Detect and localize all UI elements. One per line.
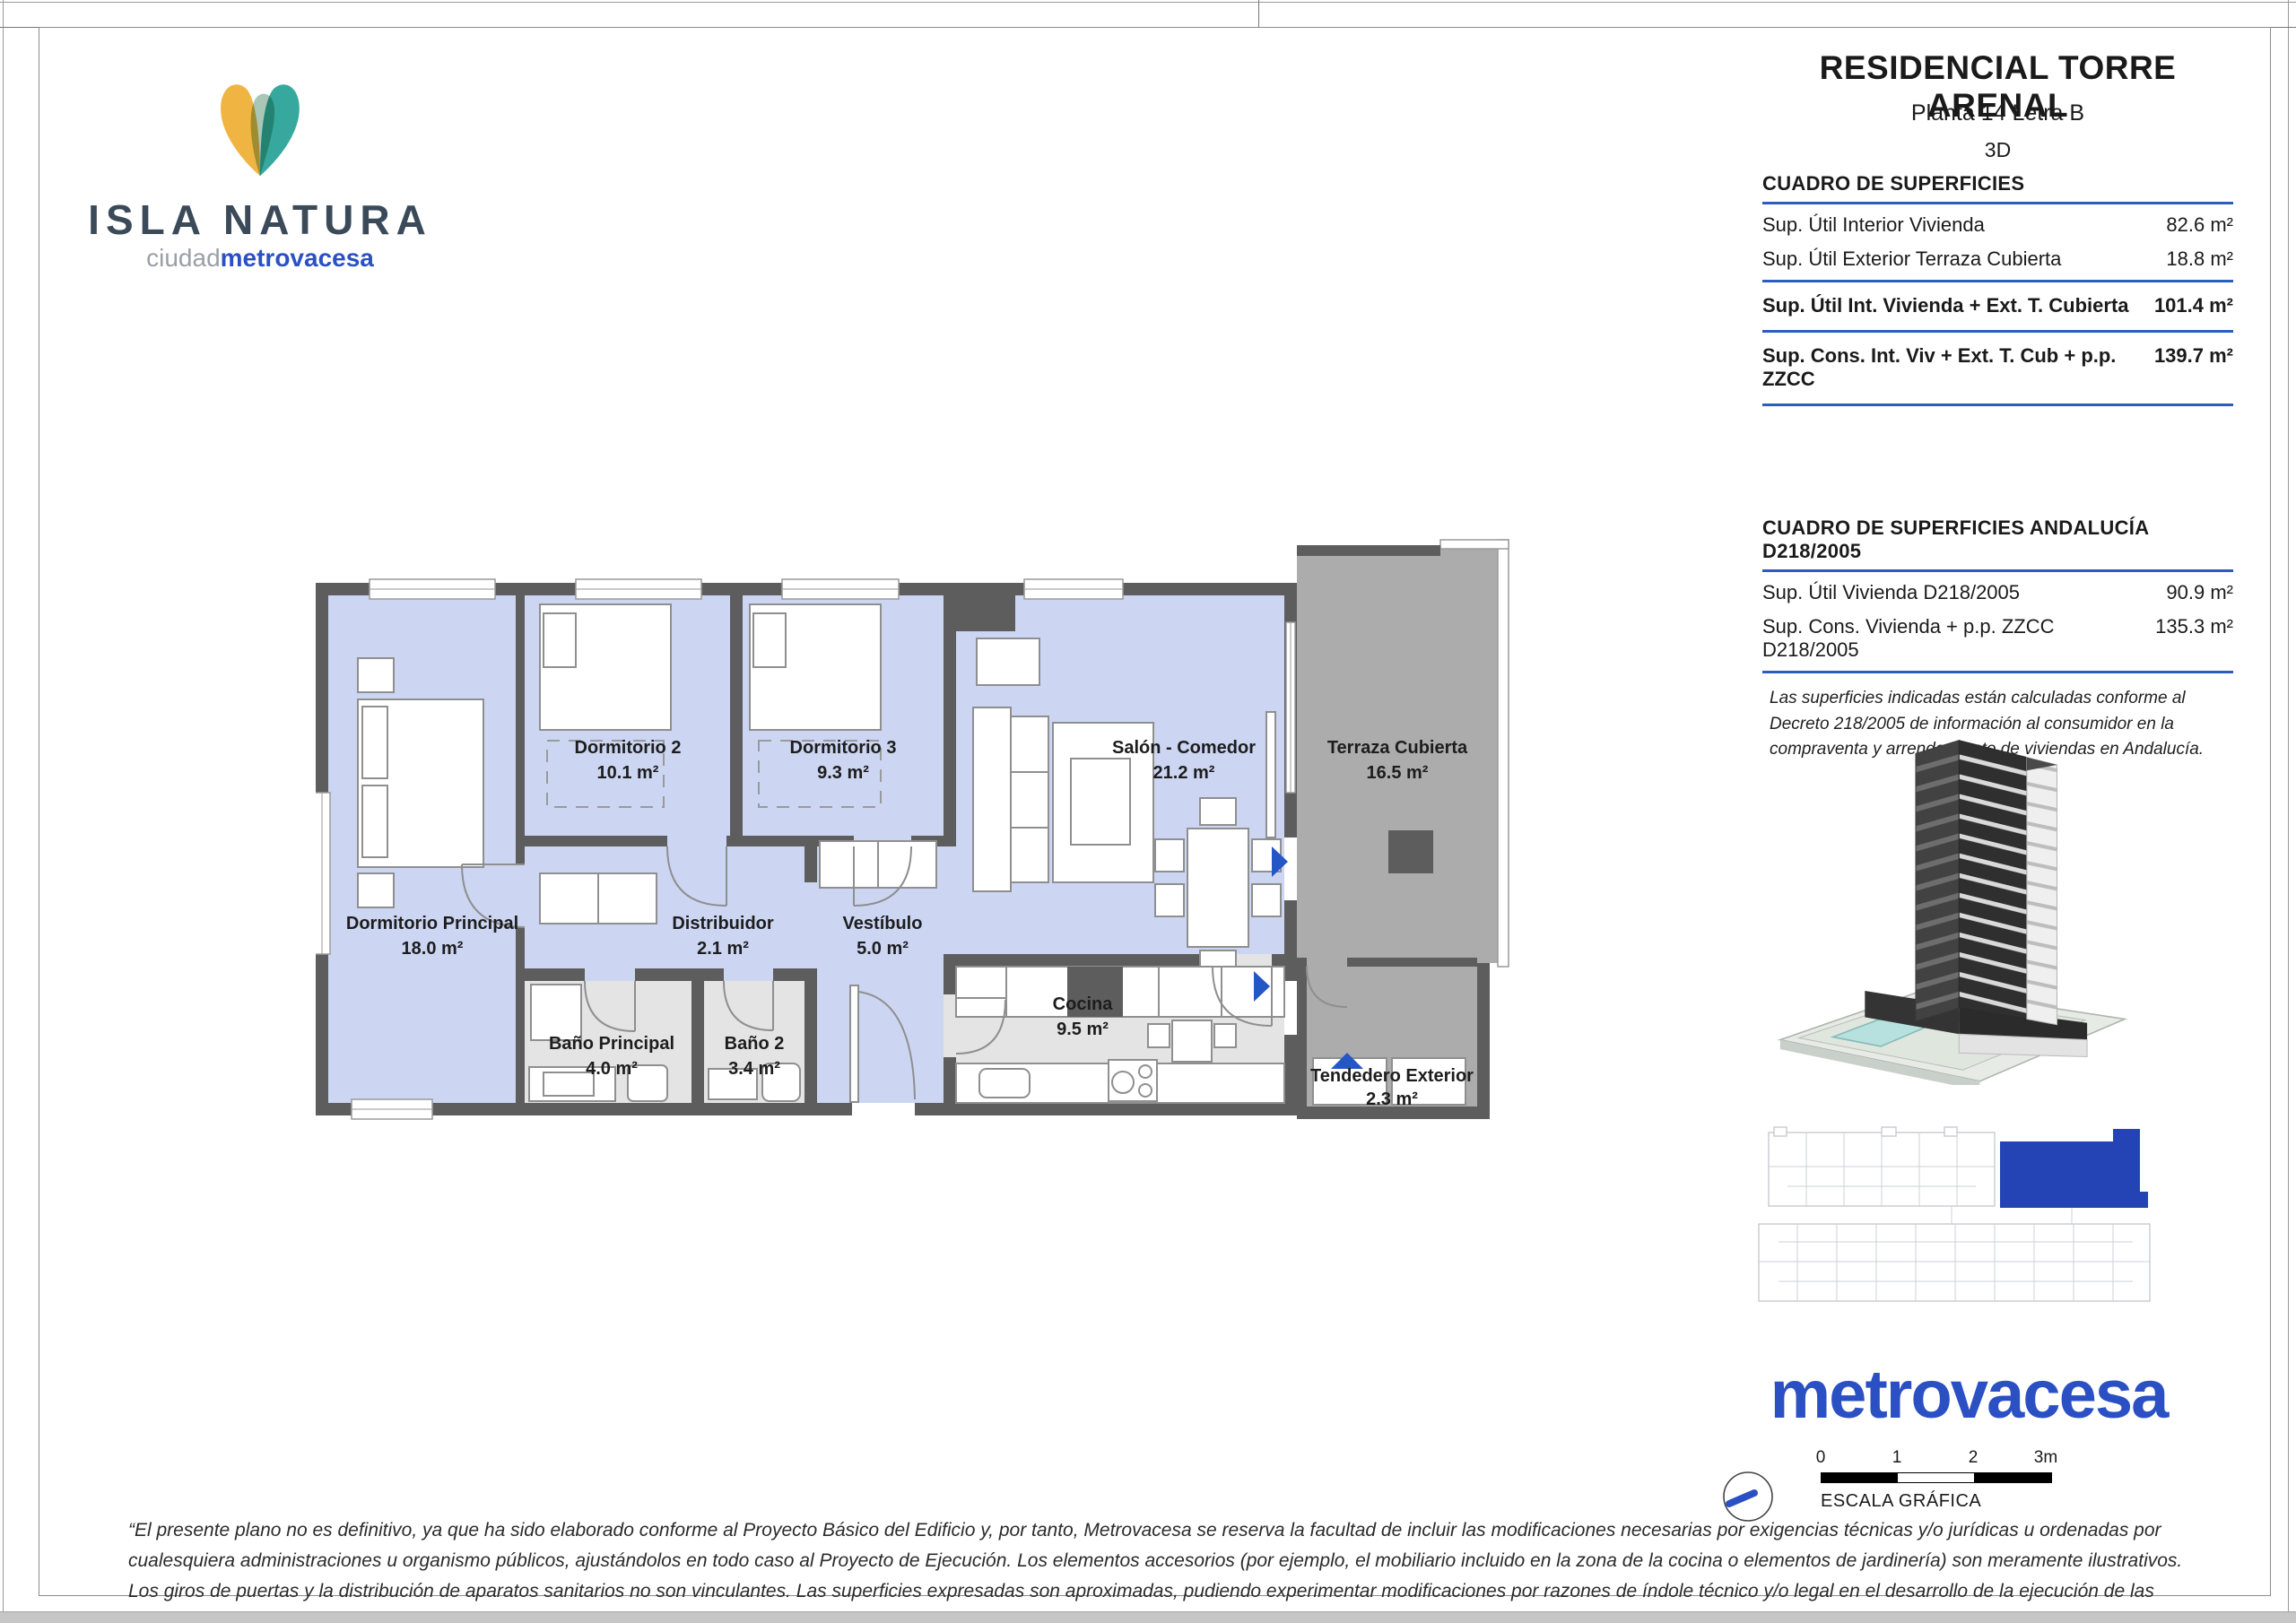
room-label: Dormitorio Principal xyxy=(346,914,518,933)
table-row: Sup. Útil Exterior Terraza Cubierta 18.8… xyxy=(1762,239,2233,273)
room-label: Baño Principal xyxy=(549,1034,674,1054)
room-label: Terraza Cubierta xyxy=(1327,738,1468,758)
scale-label-0: 0 xyxy=(1816,1448,1826,1468)
building-3d-render xyxy=(1774,708,2133,1085)
scale-label-3m: 3m xyxy=(2034,1448,2057,1468)
room-area: 18.0 m² xyxy=(402,939,464,959)
room-label: Tendedero Exterior xyxy=(1310,1066,1474,1086)
row-value: 82.6 m² xyxy=(2166,213,2233,237)
table-row: Sup. Útil Interior Vivienda 82.6 m² xyxy=(1762,204,2233,239)
row-label: Sup. Cons. Vivienda + p.p. ZZCC D218/200… xyxy=(1762,615,2155,662)
scale-label-2: 2 xyxy=(1969,1448,1979,1468)
floor-key-plan xyxy=(1756,1124,2236,1303)
row-label: Sup. Útil Vivienda D218/2005 xyxy=(1762,581,2020,604)
scale-caption: ESCALA GRÁFICA xyxy=(1821,1491,1981,1512)
row-label: Sup. Útil Int. Vivienda + Ext. T. Cubier… xyxy=(1762,294,2129,317)
row-value: 101.4 m² xyxy=(2154,294,2233,317)
tower-front-face xyxy=(1959,741,2027,1020)
surfaces-table: CUADRO DE SUPERFICIES Sup. Útil Interior… xyxy=(1762,172,2233,406)
room-area: 9.3 m² xyxy=(817,763,869,783)
room-label: Baño 2 xyxy=(725,1034,785,1054)
room-area: 16.5 m² xyxy=(1367,763,1429,783)
metrovacesa-logo: metrovacesa xyxy=(1709,1356,2229,1434)
room-area: 2.1 m² xyxy=(697,939,749,959)
room-label: Salón - Comedor xyxy=(1112,738,1256,758)
andalucia-table-title: CUADRO DE SUPERFICIES ANDALUCÍA D218/200… xyxy=(1762,516,2233,572)
scale-label-1: 1 xyxy=(1892,1448,1902,1468)
brand-ciudad: ciudad xyxy=(146,244,221,272)
table-rule xyxy=(1762,404,2233,406)
sheet-header-tick xyxy=(1258,0,1259,27)
keyplan-bottom-row xyxy=(1759,1224,2150,1301)
tower-balcony-column xyxy=(2027,758,2057,1025)
room-area: 10.1 m² xyxy=(597,763,659,783)
legal-disclaimer: “El presente plano no es definitivo, ya … xyxy=(128,1515,2209,1623)
room-label: Vestíbulo xyxy=(843,914,923,933)
room-area: 4.0 m² xyxy=(586,1059,638,1079)
unit-title: Planta 14 Letra B xyxy=(1762,100,2233,126)
terrace-railing xyxy=(1498,540,1509,967)
room-label: Cocina xyxy=(1053,994,1114,1014)
row-value: 139.7 m² xyxy=(2154,344,2233,368)
tower-left-face xyxy=(1916,741,1959,1021)
row-label: Sup. Útil Exterior Terraza Cubierta xyxy=(1762,247,2061,271)
room-label: Dormitorio 3 xyxy=(790,738,897,758)
room-area: 5.0 m² xyxy=(857,939,909,959)
sheet-edge-left xyxy=(3,0,4,1611)
room-area: 2.3 m² xyxy=(1366,1089,1418,1109)
room-area: 3.4 m² xyxy=(728,1059,780,1079)
brand-subtitle: ciudadmetrovacesa xyxy=(76,244,444,273)
floorplan-sheet: ISLA NATURA ciudadmetrovacesa RESIDENCIA… xyxy=(0,0,2296,1623)
terrace-railing-top xyxy=(1440,540,1509,549)
sheet-edge-right xyxy=(2288,0,2289,1611)
row-label: Sup. Útil Interior Vivienda xyxy=(1762,213,1985,237)
row-value: 135.3 m² xyxy=(2155,615,2233,638)
table-row: Sup. Útil Vivienda D218/2005 90.9 m² xyxy=(1762,572,2233,606)
room-label: Distribuidor xyxy=(672,914,774,933)
brand-metrovacesa: metrovacesa xyxy=(221,244,374,272)
view-label: 3D xyxy=(1762,138,2233,162)
isla-natura-heart-logo xyxy=(210,84,307,183)
keyplan-highlighted-unit xyxy=(2000,1129,2148,1208)
room-label: Dormitorio 2 xyxy=(575,738,682,758)
sheet-bottom-strip xyxy=(0,1611,2296,1623)
row-label: Sup. Cons. Int. Viv + Ext. T. Cub + p.p.… xyxy=(1762,344,2154,391)
table-row-total: Sup. Útil Int. Vivienda + Ext. T. Cubier… xyxy=(1762,282,2233,323)
brand-name: ISLA NATURA xyxy=(76,195,444,244)
table-row-total: Sup. Cons. Int. Viv + Ext. T. Cub + p.p.… xyxy=(1762,333,2233,396)
sheet-edge-top xyxy=(0,2,2296,3)
scale-bar xyxy=(1821,1472,2052,1483)
table-row: Sup. Cons. Vivienda + p.p. ZZCC D218/200… xyxy=(1762,606,2233,664)
apartment-floor-plan: Dormitorio 2 10.1 m² Dormitorio 3 9.3 m²… xyxy=(316,533,1518,1151)
surfaces-table-title: CUADRO DE SUPERFICIES xyxy=(1762,172,2233,204)
room-area: 9.5 m² xyxy=(1057,1020,1109,1039)
row-value: 18.8 m² xyxy=(2166,247,2233,271)
room-area: 21.2 m² xyxy=(1153,763,1215,783)
row-value: 90.9 m² xyxy=(2166,581,2233,604)
